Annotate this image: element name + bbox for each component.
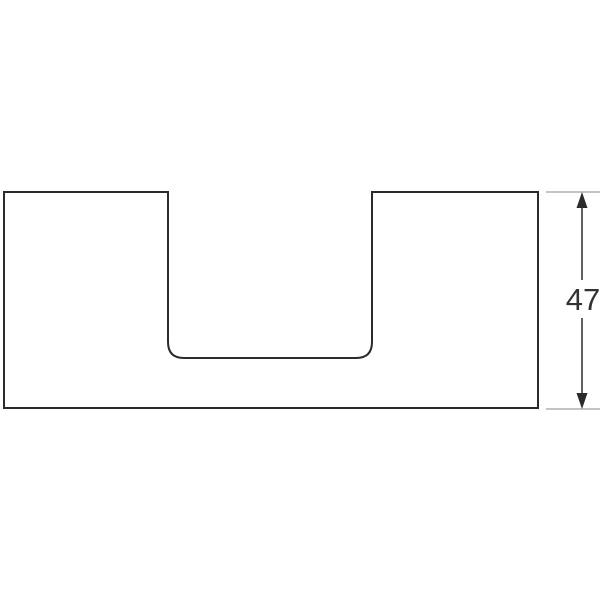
- dimension-label: 47: [566, 282, 600, 317]
- panel-outline: [4, 192, 538, 408]
- arrow-up-icon: [577, 192, 588, 208]
- arrow-down-icon: [577, 393, 588, 409]
- technical-drawing-canvas: 47: [0, 0, 600, 600]
- dimension-drawing: 47: [0, 0, 600, 600]
